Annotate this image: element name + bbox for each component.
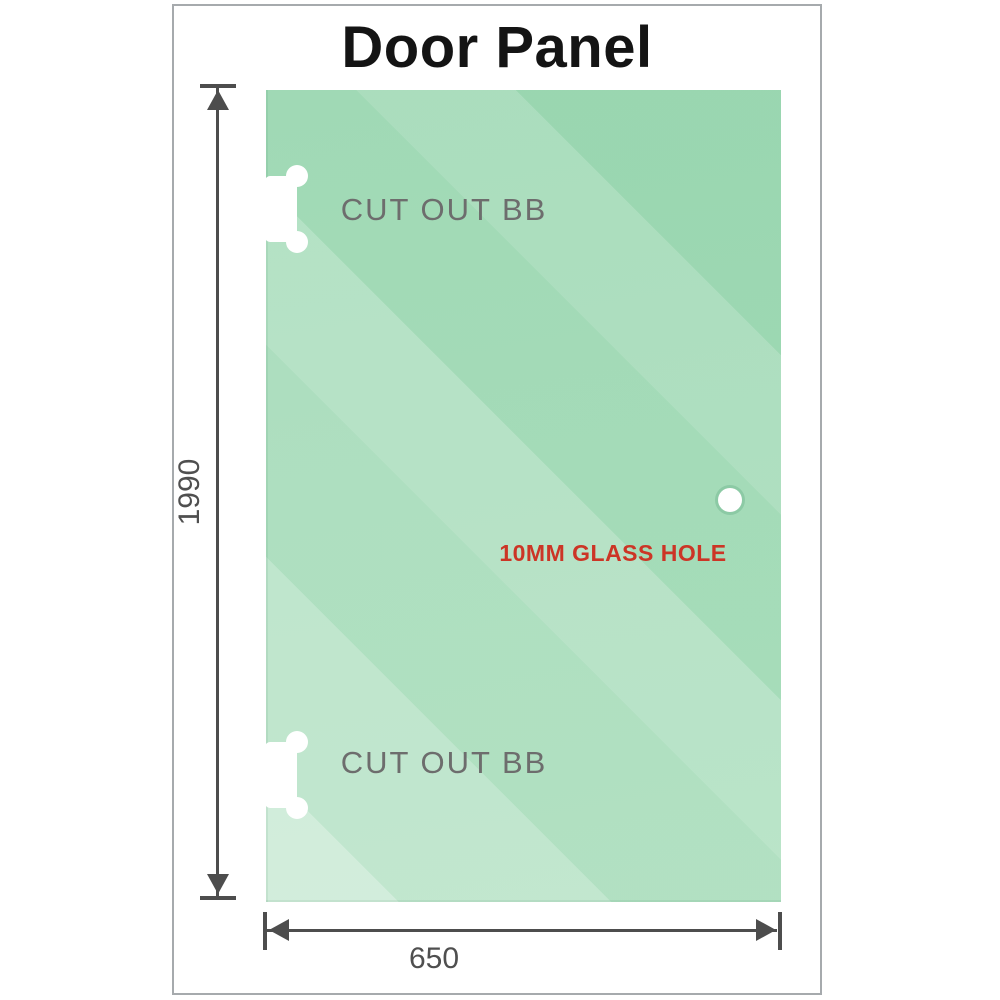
glass-hole <box>718 488 742 512</box>
arrow-left-icon <box>269 919 289 941</box>
hinge-cutout-top <box>265 165 309 253</box>
cutout-top-label: CUT OUT BB <box>334 192 554 228</box>
cutout-lobe-icon <box>286 165 308 187</box>
door-panel-glass: CUT OUT BB CUT OUT BB 10MM GLASS HOLE <box>266 90 781 902</box>
glass-hole-label: 10MM GLASS HOLE <box>488 540 738 567</box>
dimension-line-horizontal <box>267 929 777 932</box>
arrow-up-icon <box>207 90 229 110</box>
cutout-lobe-icon <box>286 797 308 819</box>
cutout-lobe-icon <box>286 231 308 253</box>
width-value: 650 <box>354 942 514 976</box>
drawing-page: Door Panel CUT OUT BB CUT OUT BB 10MM GL… <box>172 4 822 995</box>
cutout-lobe-icon <box>286 731 308 753</box>
hinge-cutout-bottom <box>265 731 309 819</box>
dimension-cap-bottom <box>200 896 236 900</box>
arrow-down-icon <box>207 874 229 894</box>
cutout-bottom-label: CUT OUT BB <box>334 745 554 781</box>
dimension-cap-right <box>778 912 782 950</box>
height-value: 1990 <box>170 442 210 542</box>
dimension-line-vertical <box>216 86 219 898</box>
arrow-right-icon <box>756 919 776 941</box>
page-title: Door Panel <box>174 14 820 81</box>
